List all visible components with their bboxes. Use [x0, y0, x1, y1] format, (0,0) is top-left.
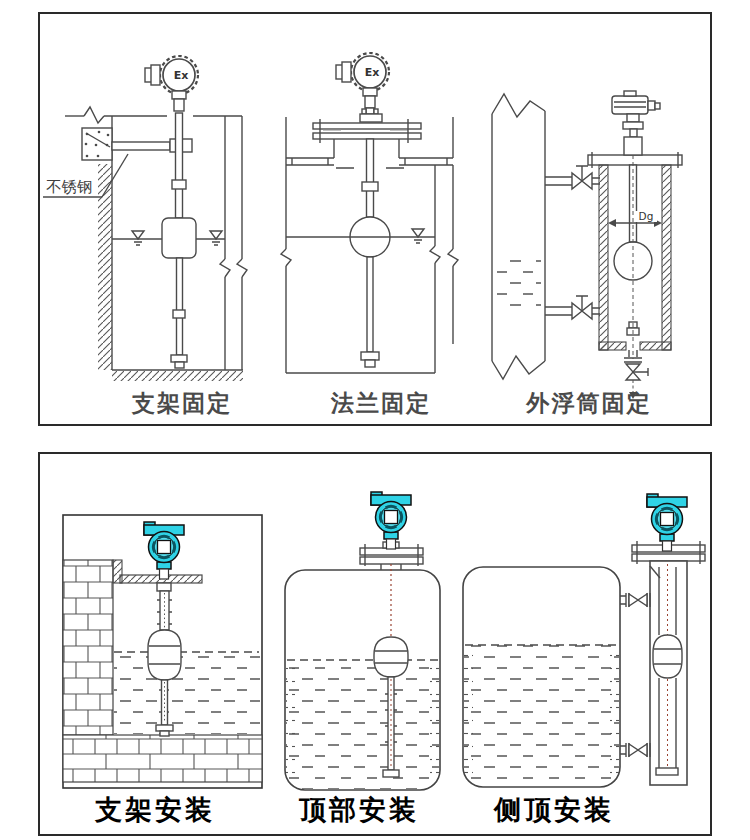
water-dashes	[464, 645, 619, 786]
vessel-right-wall	[193, 116, 247, 370]
bottom-panel: 支架安装 顶部安装 侧顶安装	[38, 452, 712, 836]
level-marker	[412, 229, 424, 243]
brick-wall	[63, 560, 113, 735]
upper-connection-valve-icon	[620, 593, 650, 607]
stem-weight	[383, 770, 399, 777]
lower-valve-icon	[545, 296, 600, 319]
caption-bracket-fixing: 支架固定	[102, 388, 262, 419]
stainless-steel-text: 不锈钢	[46, 178, 93, 196]
compact-transmitter-icon	[612, 91, 660, 155]
sensor-stem-lower	[367, 257, 373, 352]
brick-floor	[63, 735, 262, 782]
caption-bracket-install: 支架安装	[75, 792, 235, 828]
wall-hatch	[98, 164, 112, 370]
stem-weight	[171, 355, 187, 368]
caption-flange-fixing: 法兰固定	[301, 388, 461, 419]
float	[162, 218, 196, 258]
float	[653, 635, 682, 678]
sensor-stem-lower	[177, 258, 183, 355]
water-dashes	[286, 660, 439, 789]
stem-weight	[361, 352, 379, 367]
caption-side-top-install: 侧顶安装	[474, 792, 634, 828]
tank-column	[492, 94, 545, 379]
sensor-stem	[176, 113, 183, 218]
upper-valve-icon	[545, 166, 600, 189]
diagram-side-top-install	[463, 494, 705, 787]
ground-hatch	[112, 371, 243, 381]
transmitter-head-icon	[371, 492, 411, 549]
caption-external-chamber-fixing: 外浮筒固定	[499, 388, 679, 419]
level-marker	[132, 231, 144, 245]
caption-top-install: 顶部安装	[279, 792, 439, 828]
installation-methods-drawing	[40, 454, 710, 834]
ex-label-left: Ex	[174, 69, 189, 82]
top-panel: 不锈钢 Ex	[38, 12, 712, 426]
diagram-top-install	[285, 492, 440, 790]
ex-head-middle-icon: Ex	[336, 53, 389, 108]
sensor-stem	[367, 139, 374, 217]
diagram-bracket-fixing: 不锈钢 Ex	[43, 56, 247, 381]
lower-connection-valve-icon	[620, 743, 650, 757]
float	[374, 637, 408, 677]
fixing-methods-drawing: 不锈钢 Ex	[40, 14, 710, 424]
diagram-external-chamber-fixing: Dg	[492, 91, 682, 399]
water-dashes	[114, 653, 260, 734]
tube-end-cap	[656, 768, 678, 775]
transmitter-head-icon	[647, 494, 687, 551]
mount-plate	[82, 128, 112, 160]
diagram-flange-fixing: Ex	[281, 53, 458, 373]
diameter-label: Dg	[639, 210, 654, 222]
water-dashes	[497, 257, 541, 307]
ex-label-middle: Ex	[365, 66, 380, 79]
ex-head-left-icon: Ex	[145, 56, 198, 111]
float	[148, 630, 181, 680]
diagram-bracket-install	[63, 515, 262, 788]
level-marker	[210, 231, 222, 245]
page: 不锈钢 Ex	[0, 0, 750, 840]
